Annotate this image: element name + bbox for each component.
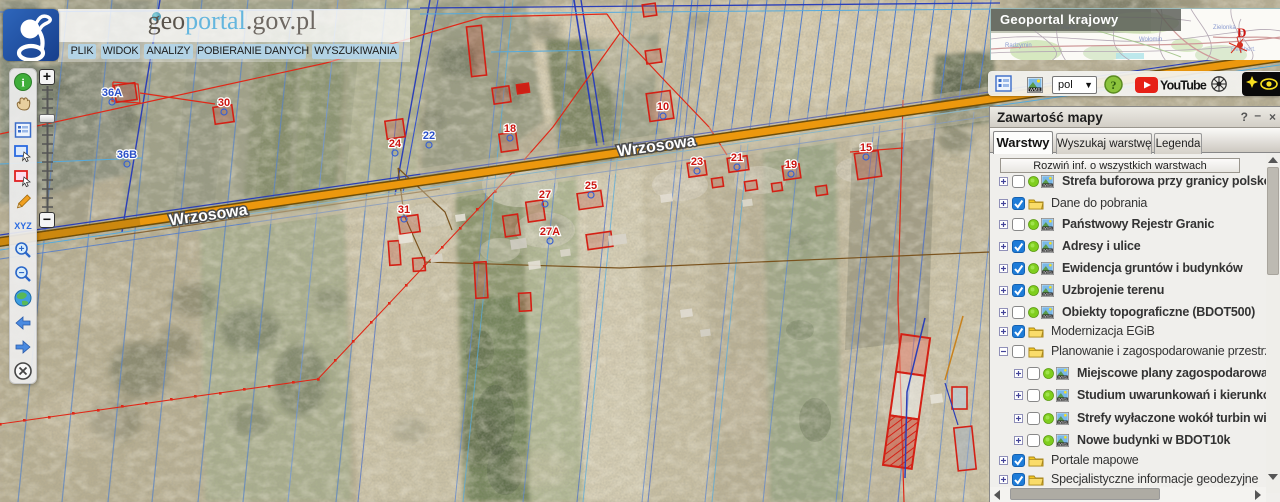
svg-text:10: 10 (657, 101, 669, 113)
svg-text:WMS: WMS (1043, 248, 1052, 252)
svg-text:WMS: WMS (1043, 314, 1052, 318)
svg-text:XYZ: XYZ (14, 221, 32, 231)
svg-text:23: 23 (691, 156, 703, 168)
svg-text:WMS: WMS (1058, 442, 1067, 446)
svg-text:D: D (1237, 25, 1246, 40)
svg-text:WMS: WMS (1043, 292, 1052, 296)
svg-text:27: 27 (539, 189, 551, 201)
svg-text:15: 15 (860, 142, 872, 154)
svg-text:19: 19 (785, 159, 797, 171)
svg-text:YouTube: YouTube (1160, 79, 1207, 93)
svg-text:22: 22 (423, 130, 435, 142)
svg-text:24: 24 (389, 138, 402, 150)
svg-text:Radzymin: Radzymin (1005, 43, 1032, 49)
svg-text:WMS: WMS (1058, 397, 1067, 401)
svg-text:Wołomin: Wołomin (1139, 37, 1162, 43)
svg-text:36B: 36B (117, 149, 137, 161)
svg-text:−: − (19, 268, 25, 279)
svg-text:?: ? (1111, 78, 1117, 92)
svg-text:25: 25 (585, 180, 597, 192)
svg-text:WMS: WMS (1043, 270, 1052, 274)
svg-text:18: 18 (504, 123, 516, 135)
svg-text:WMS: WMS (1043, 183, 1052, 187)
svg-text:36A: 36A (102, 87, 122, 99)
svg-text:WMS: WMS (1058, 420, 1067, 424)
svg-text:30: 30 (218, 97, 230, 109)
svg-text:WMS: WMS (1058, 375, 1067, 379)
svg-text:WMS: WMS (1043, 226, 1052, 230)
svg-text:WMS: WMS (1030, 87, 1041, 92)
svg-text:27A: 27A (540, 226, 560, 238)
svg-text:31: 31 (398, 204, 410, 216)
svg-text:+: + (19, 244, 25, 255)
svg-text:Zielonka: Zielonka (1213, 25, 1236, 31)
svg-text:21: 21 (731, 152, 743, 164)
